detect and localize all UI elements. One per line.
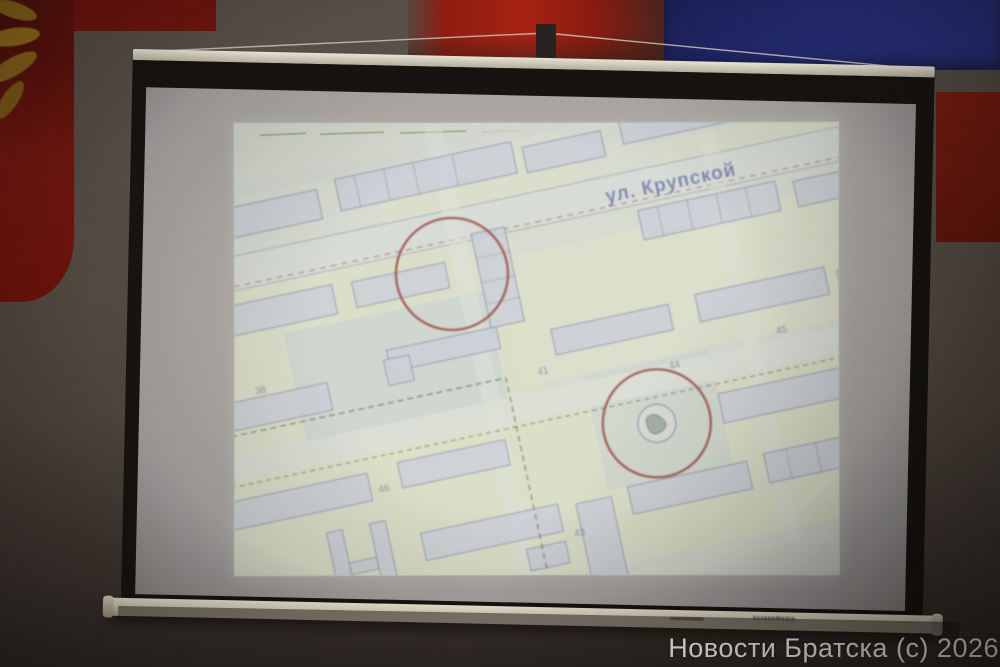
city-plan-svg: ул. Крупской 41 44 45 43 46 38: [234, 122, 839, 575]
wall-red-panel-right: [936, 92, 1000, 242]
screen-black-frame: ул. Крупской 41 44 45 43 46 38: [121, 60, 935, 617]
rail-end-cap-left: [103, 595, 114, 617]
watermark-text: Новости Братска (с) 2026: [668, 633, 999, 664]
projected-city-plan: ул. Крупской 41 44 45 43 46 38: [233, 121, 840, 576]
projector-screen: ул. Крупской 41 44 45 43 46 38: [121, 49, 935, 634]
screen-surface: ул. Крупской 41 44 45 43 46 38: [135, 87, 916, 611]
photo-of-projection-screen: ул. Крупской 41 44 45 43 46 38: [0, 0, 1000, 667]
suspension-wire-left: [139, 33, 546, 52]
